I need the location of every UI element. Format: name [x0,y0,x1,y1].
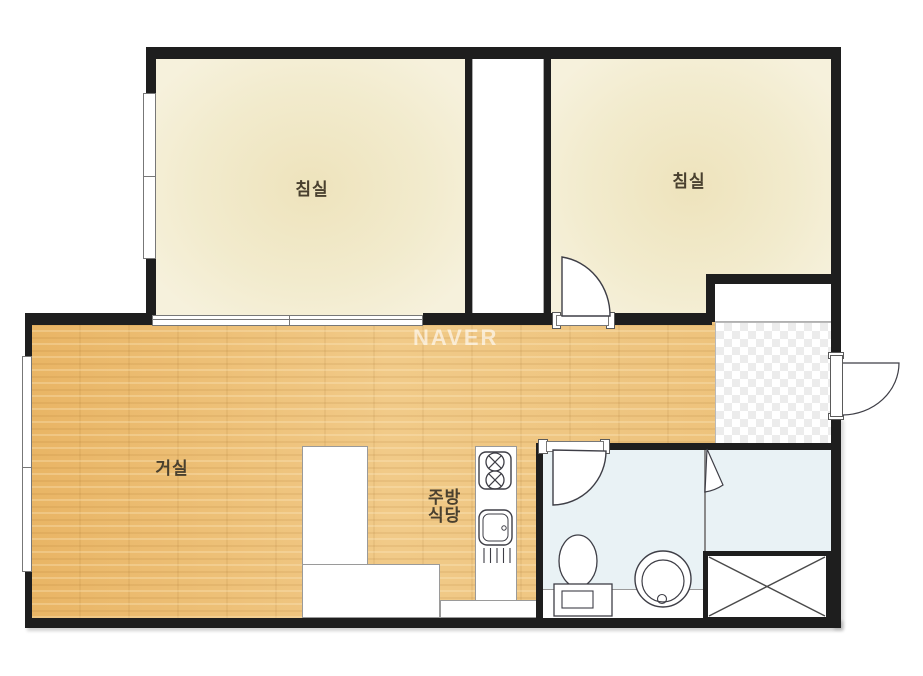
bedroom-left-window [143,93,156,259]
wall-entry-closet-top [706,274,831,284]
wall-right-upper [831,47,841,355]
wall-left-lower [25,571,32,618]
bedroom-left-label: 침실 [262,181,362,198]
kitchen-island-counter [302,446,368,565]
bedroom-right-label: 침실 [639,173,739,190]
wall-bedroom-closet [465,52,472,318]
bedroom-left-sliding-window [152,315,423,326]
kitchen-bottom-counter [302,564,440,618]
living-room-label: 거실 [122,460,222,477]
wall-entry-closet-side [706,274,715,322]
wall-bedroom-left-lower [146,258,156,318]
wall-closet-bedroom-right [544,52,551,318]
wall-bedroom-left-upper [146,47,156,95]
closet-strip [472,58,544,316]
kitchen-dining-label: 주방 식당 [428,489,488,524]
kitchen-corner-counter [440,600,537,618]
bathroom-door-sill [546,441,604,452]
duct-shaft-box [703,551,831,622]
bedroom-right-door-sill [556,315,609,326]
naver-watermark: NAVER [413,325,498,351]
wall-right-lower [831,418,841,628]
wall-under-bedrooms-a [25,313,152,325]
front-door-swing [843,363,899,415]
entrance-tile-floor [715,322,832,444]
floor-plan: 침실 침실 거실 주방 식당 NAVER [0,0,923,676]
wall-left-upper [25,313,32,357]
bathroom-vanity-band [543,589,703,618]
entry-closet [715,284,831,322]
wall-top [148,47,841,59]
bathroom-divider-line [704,450,706,551]
wall-kitchen-bathroom [536,443,543,618]
front-door-panel [830,355,843,417]
wall-under-bedrooms-b [423,313,555,325]
wall-bathroom-top-b [608,443,831,450]
wall-under-bedrooms-c [613,313,712,325]
living-room-window [22,356,32,572]
